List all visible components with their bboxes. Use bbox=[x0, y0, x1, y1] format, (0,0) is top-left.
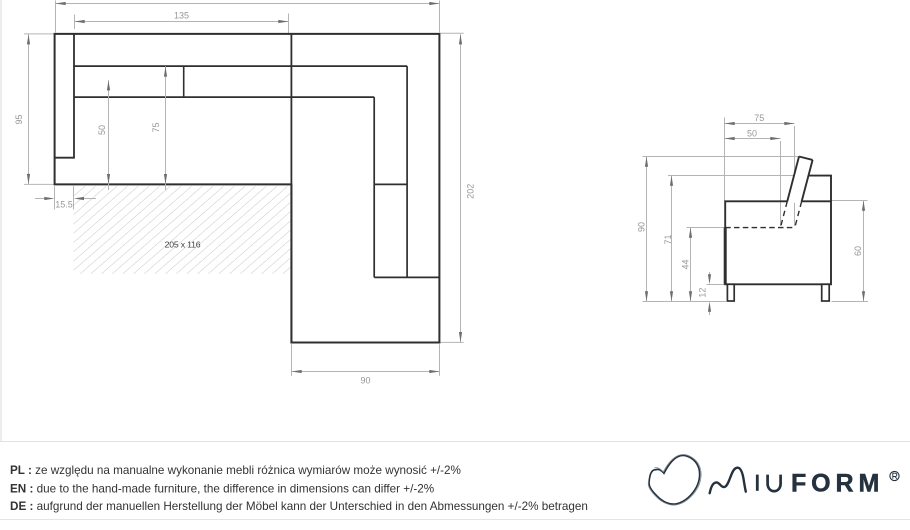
svg-text:135: 135 bbox=[174, 11, 189, 21]
svg-text:EN : due to the hand-made furn: EN : due to the hand-made furniture, the… bbox=[10, 483, 434, 496]
svg-text:50: 50 bbox=[747, 128, 757, 138]
svg-text:PL : ze względu na manualne wy: PL : ze względu na manualne wykonanie me… bbox=[10, 464, 461, 477]
svg-text:DE : aufgrund der manuellen He: DE : aufgrund der manuellen Herstellung … bbox=[10, 500, 588, 513]
svg-text:90: 90 bbox=[360, 375, 370, 385]
svg-text:12: 12 bbox=[697, 288, 707, 298]
svg-text:15.5: 15.5 bbox=[55, 200, 73, 210]
svg-text:75: 75 bbox=[151, 122, 161, 132]
svg-text:71: 71 bbox=[663, 234, 673, 244]
svg-text:44: 44 bbox=[681, 259, 691, 269]
svg-text:90: 90 bbox=[637, 222, 647, 232]
svg-text:95: 95 bbox=[14, 114, 24, 124]
svg-text:FORM: FORM bbox=[791, 470, 884, 498]
svg-text:202: 202 bbox=[466, 184, 476, 199]
svg-text:75: 75 bbox=[754, 113, 764, 123]
svg-text:205 x 116: 205 x 116 bbox=[165, 239, 201, 249]
svg-text:50: 50 bbox=[97, 125, 107, 135]
svg-text:60: 60 bbox=[853, 246, 863, 256]
